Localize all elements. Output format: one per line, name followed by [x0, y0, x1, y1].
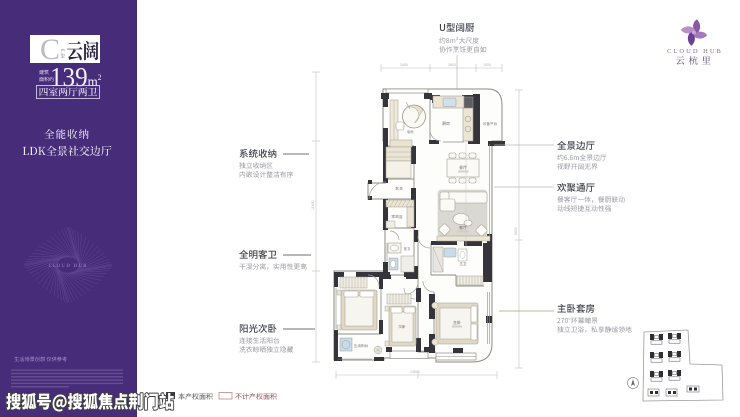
svg-text:13500: 13500: [410, 370, 420, 374]
svg-text:2600: 2600: [448, 63, 456, 67]
svg-text:C: C: [40, 33, 60, 66]
svg-text:6600: 6600: [514, 227, 518, 235]
svg-text:1500: 1500: [483, 63, 491, 67]
svg-text:CLOUD HUB: CLOUD HUB: [667, 48, 723, 55]
svg-text:11400: 11400: [311, 200, 315, 210]
svg-text:3400: 3400: [400, 63, 408, 67]
